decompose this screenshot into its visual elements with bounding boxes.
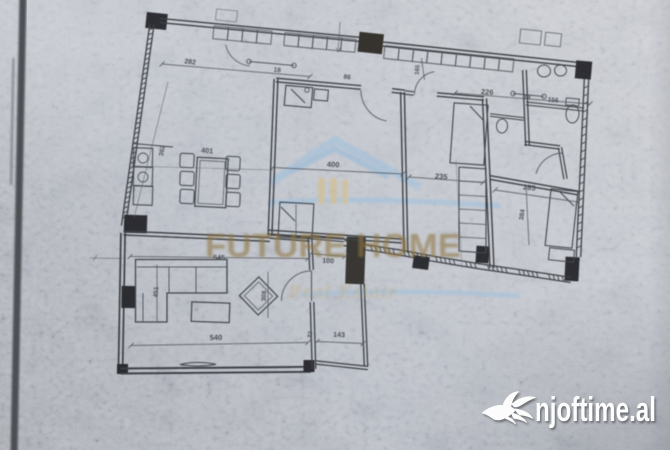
svg-text:400: 400 [327, 160, 340, 170]
svg-text:401: 401 [201, 146, 214, 156]
svg-text:86: 86 [343, 74, 351, 82]
svg-text:18: 18 [273, 67, 281, 75]
svg-text:308: 308 [261, 290, 268, 301]
svg-text:Real Estate: Real Estate [287, 281, 398, 303]
svg-text:451: 451 [153, 286, 160, 297]
svg-text:285: 285 [523, 182, 536, 192]
svg-text:njoftime.al: njoftime.al [535, 391, 656, 429]
svg-text:226: 226 [481, 87, 494, 97]
svg-text:540: 540 [210, 333, 223, 342]
svg-text:18: 18 [523, 95, 531, 102]
svg-text:156: 156 [547, 97, 559, 105]
svg-text:282: 282 [184, 58, 196, 66]
svg-text:165: 165 [414, 64, 421, 75]
svg-text:235: 235 [435, 172, 448, 182]
svg-text:143: 143 [333, 332, 345, 339]
svg-text:FUTURE HOME: FUTURE HOME [205, 227, 461, 264]
